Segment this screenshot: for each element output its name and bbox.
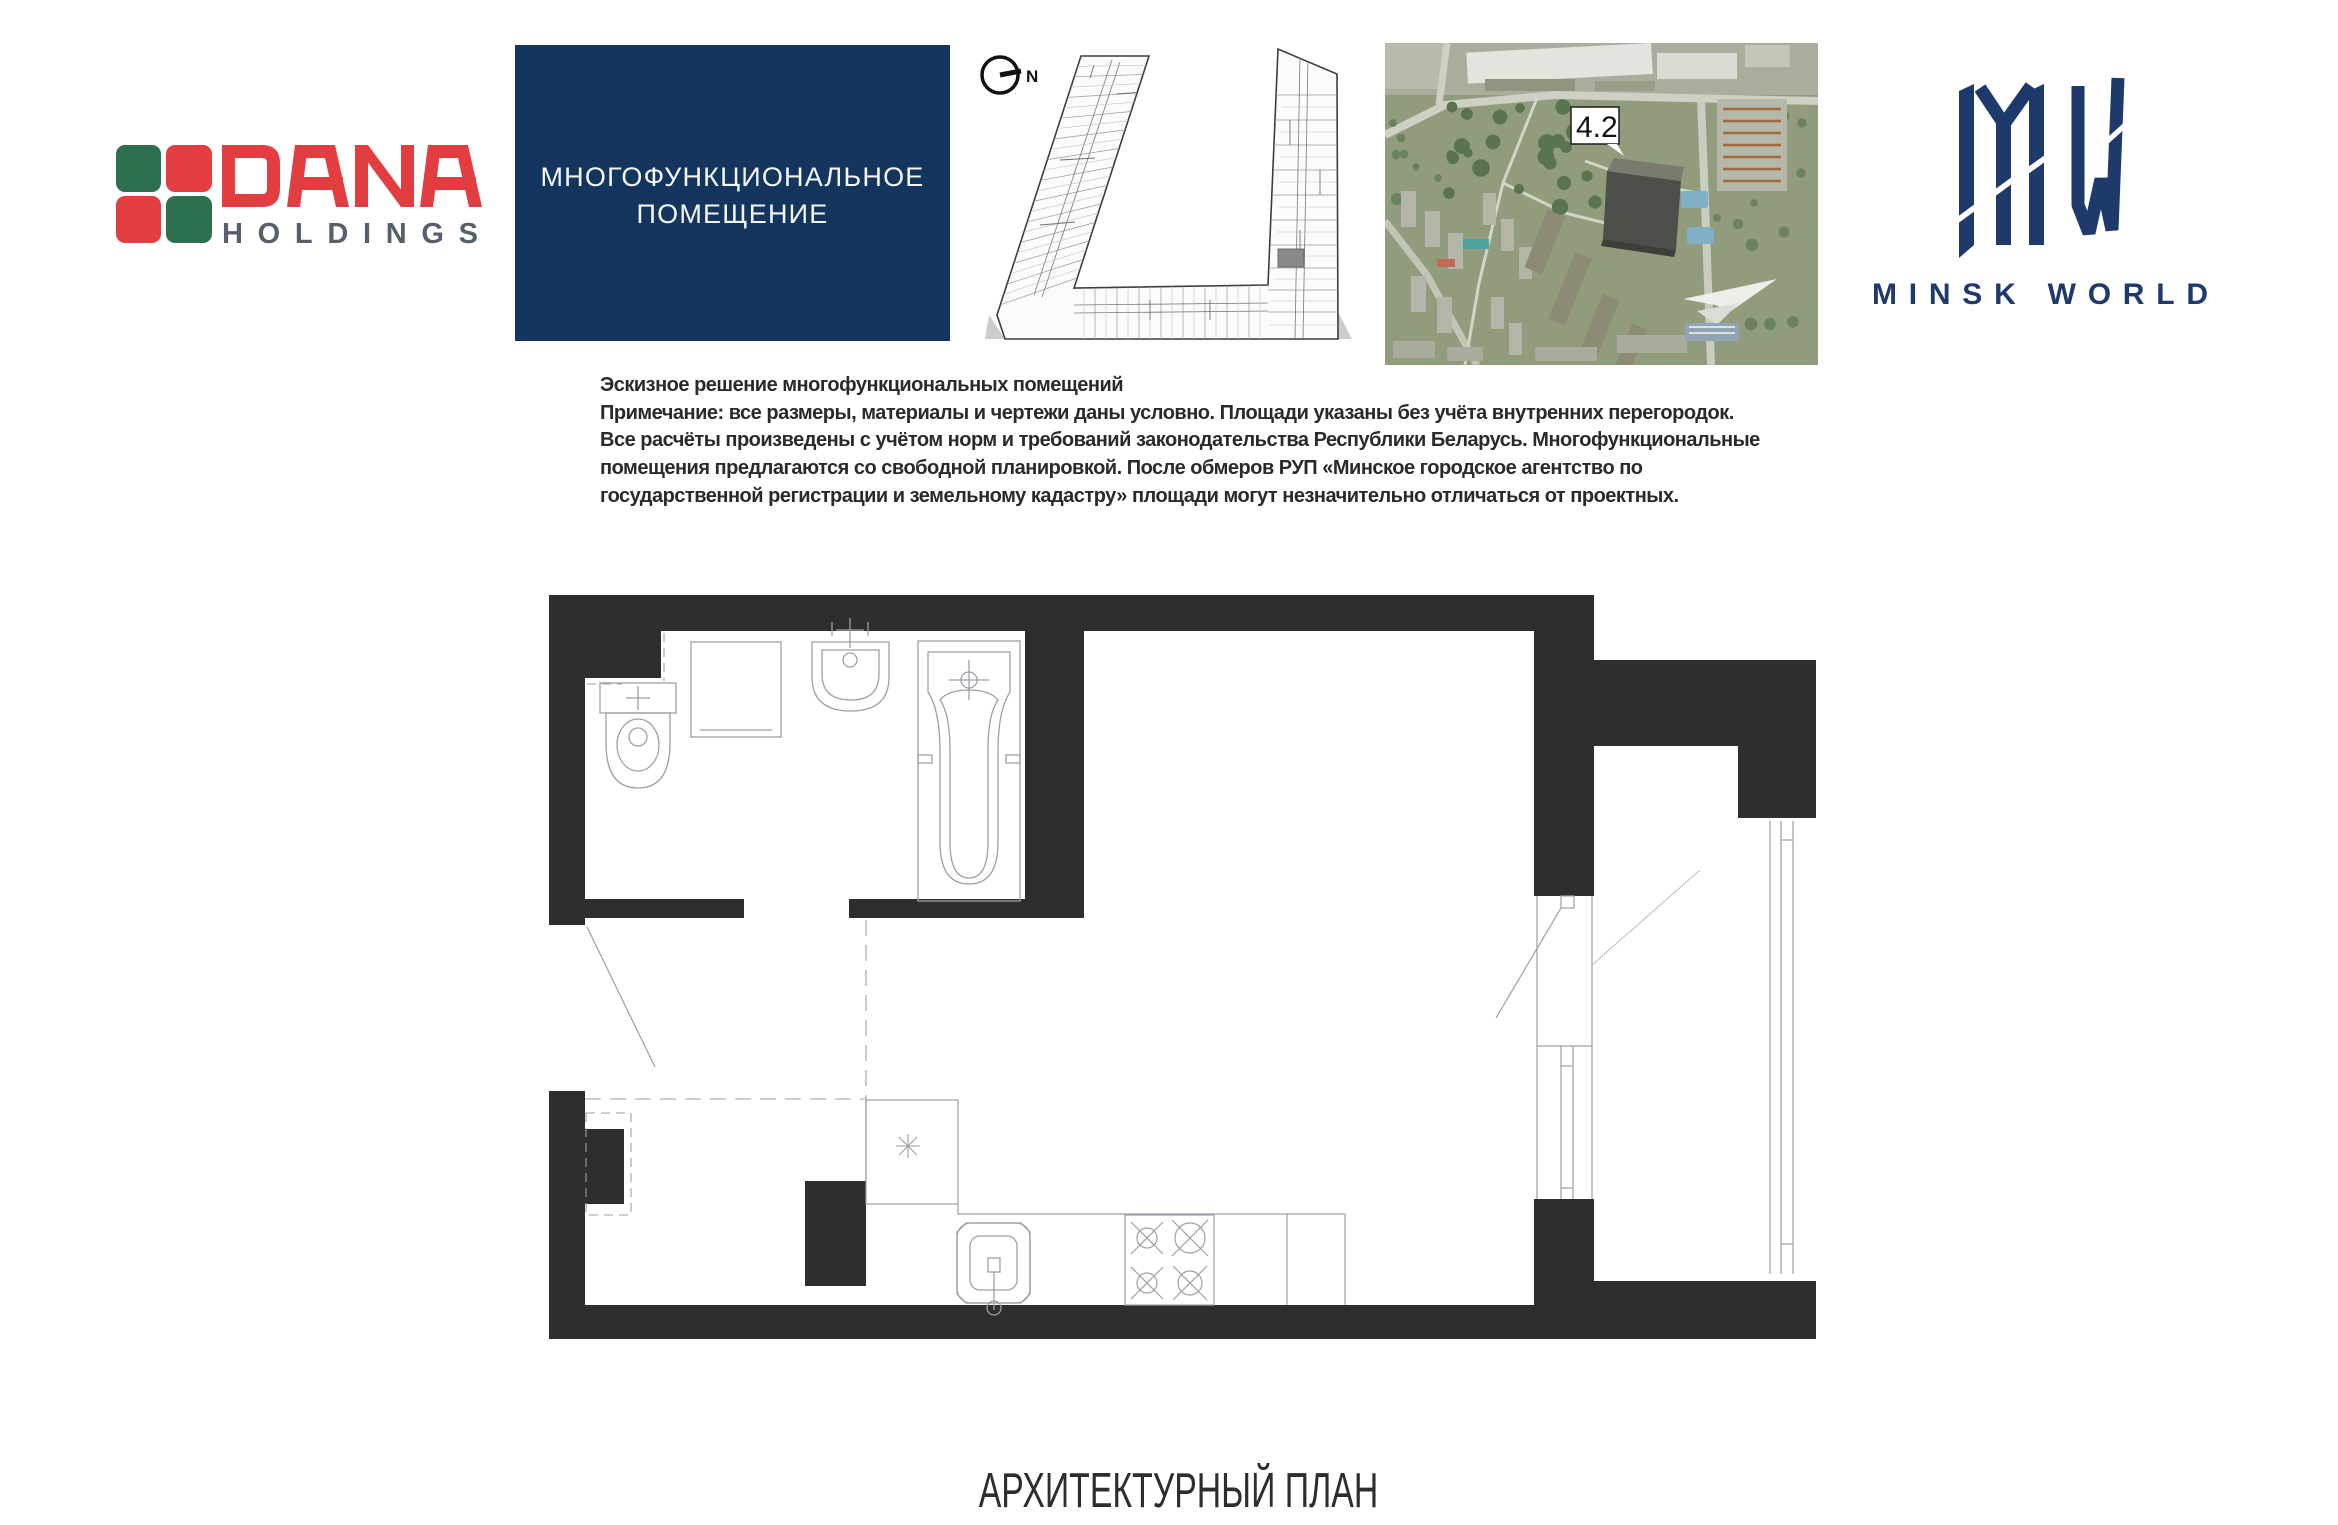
svg-text:MINSK WORLD: MINSK WORLD [1872,278,2208,311]
svg-text:4.2: 4.2 [1576,111,1618,144]
svg-text:HOLDINGS: HOLDINGS [222,218,478,250]
svg-text:N: N [1026,67,1038,86]
